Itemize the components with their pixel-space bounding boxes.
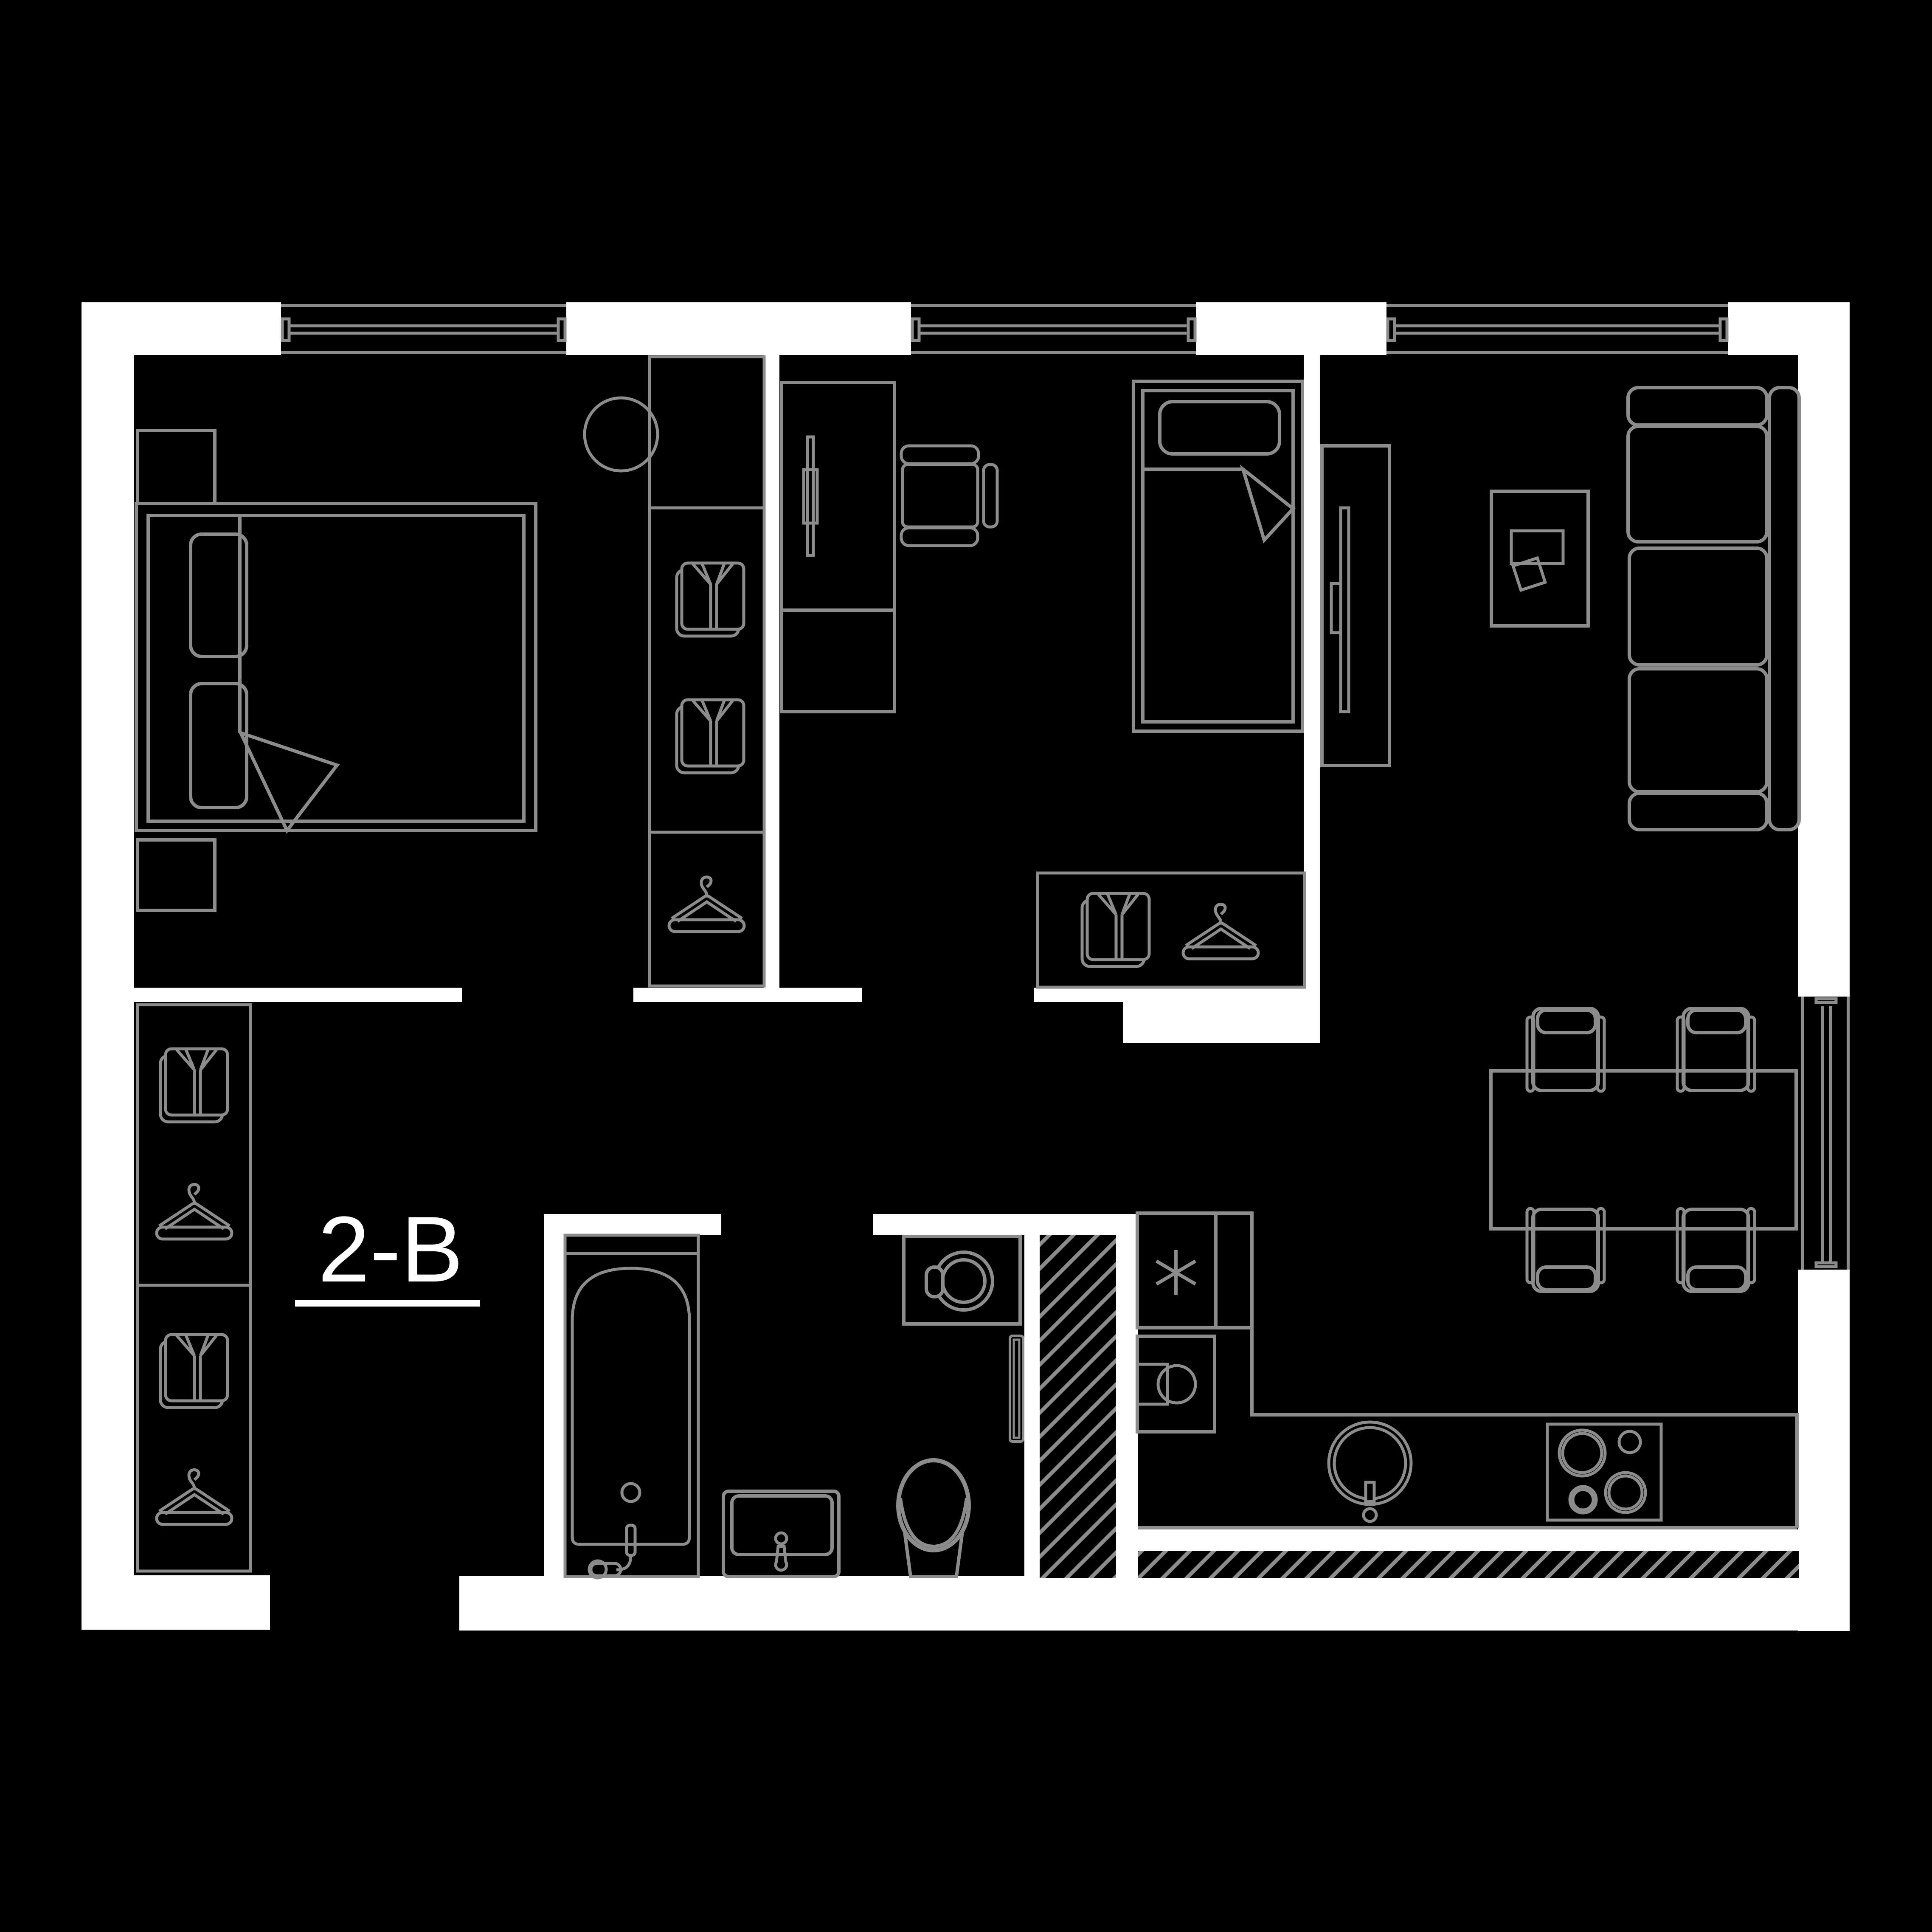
- svg-text:2-B: 2-B: [318, 1197, 463, 1301]
